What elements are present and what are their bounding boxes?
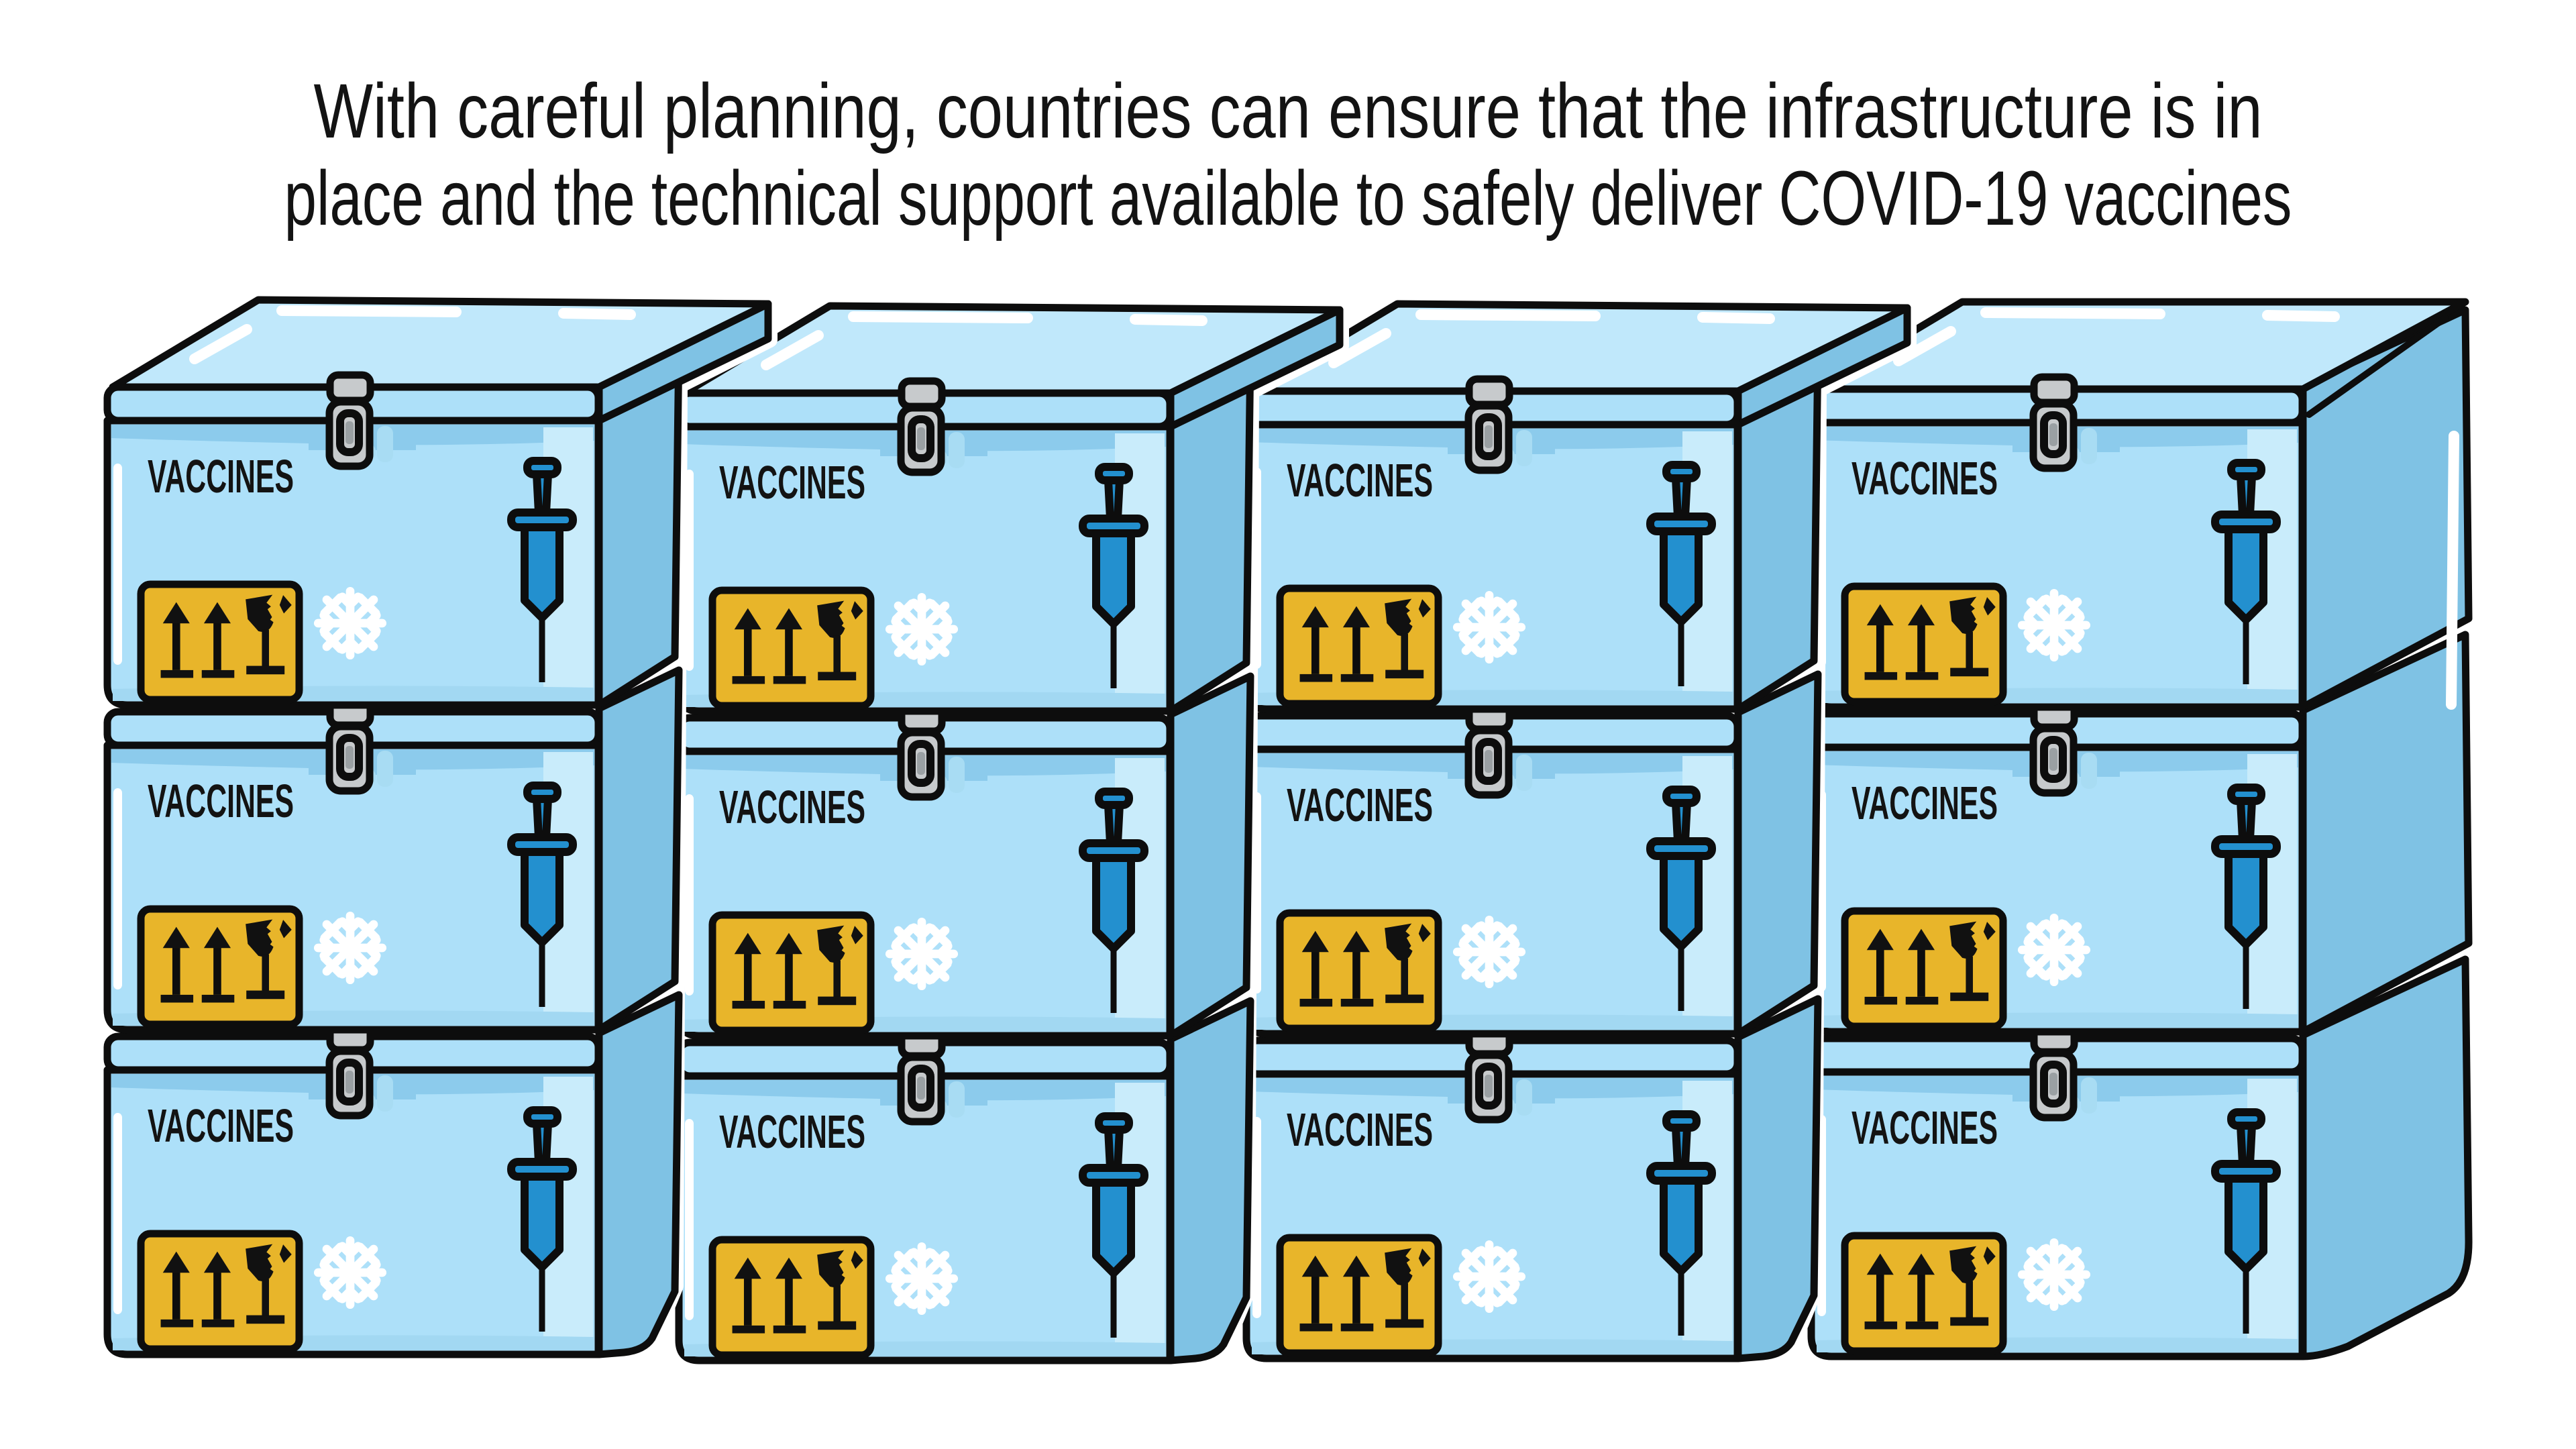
svg-text:With careful planning, countri: With careful planning, countries can ens… bbox=[314, 68, 2263, 154]
svg-text:place and the technical suppor: place and the technical support availabl… bbox=[284, 156, 2292, 241]
